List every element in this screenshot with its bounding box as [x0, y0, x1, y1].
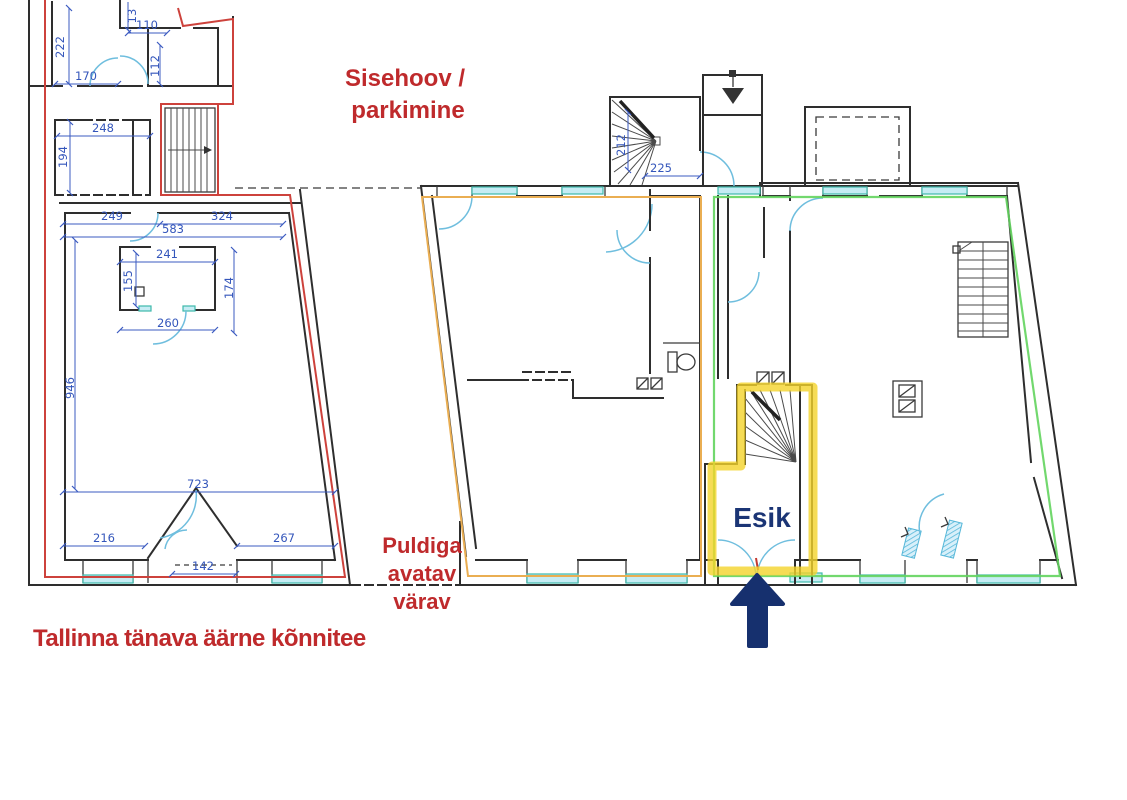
window-band: [562, 187, 603, 194]
shaft-with-arrow: [703, 70, 762, 186]
vent-symbols: [637, 378, 662, 389]
toilet: [663, 343, 700, 372]
dim-155: 155: [121, 270, 135, 292]
window-band: [823, 187, 867, 194]
dim-194: 194: [56, 146, 70, 168]
floor-plan-drawing: 222 13 110 112 170 248 194 249 324 583 2…: [0, 0, 1127, 800]
dim-142: 142: [192, 559, 214, 573]
courtyard-label-line2: parkimine: [351, 97, 464, 124]
door-arc: [728, 272, 759, 302]
dim-112: 112: [148, 55, 162, 77]
door-arc: [120, 56, 148, 84]
door-arc: [617, 230, 650, 263]
window-band: [922, 187, 967, 194]
window-band: [718, 187, 760, 194]
esik-entrance-hall: [705, 372, 812, 583]
dim-216: 216: [93, 531, 115, 545]
entrance-bay: [148, 488, 237, 565]
boundary-orange-line: [422, 197, 701, 576]
dim-249: 249: [101, 209, 123, 223]
dim-225: 225: [650, 161, 672, 175]
gate-label-line2: avatav: [388, 561, 457, 586]
dim-212: 212: [614, 134, 628, 156]
esik-staircase: [745, 390, 796, 462]
dim-222: 222: [53, 36, 67, 58]
vent-stack: [893, 381, 922, 417]
dim-241: 241: [156, 247, 178, 261]
door-arc: [439, 196, 472, 229]
door-arc: [606, 204, 652, 252]
dim-946: 946: [63, 377, 77, 399]
dim-174: 174: [222, 277, 236, 299]
hall-staircase: [953, 242, 1008, 337]
dim-324: 324: [211, 209, 233, 223]
courtyard-staircase: [165, 108, 215, 192]
dim-170: 170: [75, 69, 97, 83]
gate-label-line1: Puldiga: [382, 533, 462, 558]
entrance-room-label: Esik: [733, 502, 791, 533]
window-band: [472, 187, 517, 194]
dashed-structure: [805, 107, 910, 186]
middle-building: [421, 186, 1018, 585]
dim-583: 583: [162, 222, 184, 236]
gate-label-line3: värav: [393, 589, 451, 614]
down-arrow-icon: [722, 88, 744, 104]
sidewalk-label: Tallinna tänava äärne kõnnitee: [33, 625, 366, 652]
door-arc: [700, 152, 734, 186]
door-arc: [790, 198, 823, 231]
hatched-door: [901, 494, 962, 558]
esik-highlight-outline: [712, 387, 813, 571]
dim-110: 110: [136, 18, 158, 32]
dim-723: 723: [187, 477, 209, 491]
floor-plan-page: 222 13 110 112 170 248 194 249 324 583 2…: [0, 0, 1127, 800]
dim-248: 248: [92, 121, 114, 135]
courtyard-label-line1: Sisehoov /: [345, 65, 465, 92]
left-building: [29, 0, 350, 585]
dim-267: 267: [273, 531, 295, 545]
stair-tower: [610, 97, 734, 186]
dim-260: 260: [157, 316, 179, 330]
